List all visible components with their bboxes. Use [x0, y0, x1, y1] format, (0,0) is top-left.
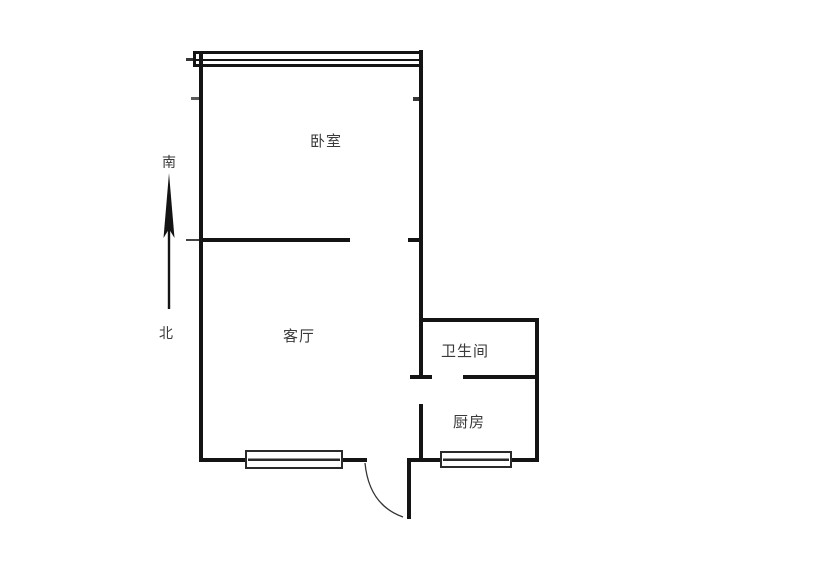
- wall-living-bottom-left: [199, 458, 245, 462]
- wall-left: [199, 54, 203, 462]
- compass: 南 北: [159, 155, 176, 342]
- north-arrow-icon: [164, 173, 175, 309]
- window-top-midline: [196, 59, 422, 61]
- wall-living-bottom-right: [343, 458, 367, 462]
- wall-kitchen-bottom-left: [419, 458, 442, 462]
- bathroom-label: 卫生间: [441, 342, 489, 360]
- compass-north-label: 北: [159, 326, 173, 342]
- wall-right-lower: [535, 318, 539, 462]
- window-top-outer-bottom: [196, 64, 422, 67]
- floor-plan-page: 南 北 卧室 客厅 卫生间 厨房: [0, 0, 814, 569]
- wall-bedroom-divider-left-tick: [186, 239, 199, 241]
- wall-tick-left: [191, 97, 200, 100]
- compass-arrow-shaft: [168, 229, 170, 309]
- wall-bedroom-divider: [199, 238, 350, 242]
- compass-arrow-head: [164, 173, 175, 238]
- wall-bathroom-top: [419, 318, 539, 322]
- window-top-left-tick: [186, 58, 194, 61]
- wall-bathroom-bottom-left-stub: [410, 375, 432, 379]
- wall-kitchen-bottom-right: [510, 458, 539, 462]
- floor-plan-canvas: 南 北 卧室 客厅 卫生间 厨房: [0, 0, 814, 569]
- compass-south-label: 南: [162, 155, 176, 171]
- wall-right-upper: [419, 50, 423, 322]
- wall-bathroom-left: [419, 318, 423, 378]
- entry-door-top-stub: [407, 458, 421, 462]
- entry-door-leaf: [407, 458, 411, 519]
- window-top-outer-top: [196, 51, 422, 54]
- kitchen-label: 厨房: [453, 413, 485, 431]
- wall-bathroom-bottom-right: [463, 375, 539, 379]
- room-labels: 卧室 客厅 卫生间 厨房: [283, 132, 489, 431]
- bedroom-label: 卧室: [310, 132, 342, 150]
- window-midlines: [248, 459, 509, 462]
- living-room-label: 客厅: [283, 327, 315, 345]
- walls: [186, 50, 539, 519]
- wall-bedroom-divider-right-stub: [408, 238, 419, 242]
- wall-kitchen-left: [419, 404, 423, 462]
- wall-tick-right: [413, 97, 419, 101]
- window-living-room-midline: [248, 459, 340, 462]
- window-kitchen-midline: [443, 459, 509, 462]
- entry-door-arc: [365, 463, 403, 517]
